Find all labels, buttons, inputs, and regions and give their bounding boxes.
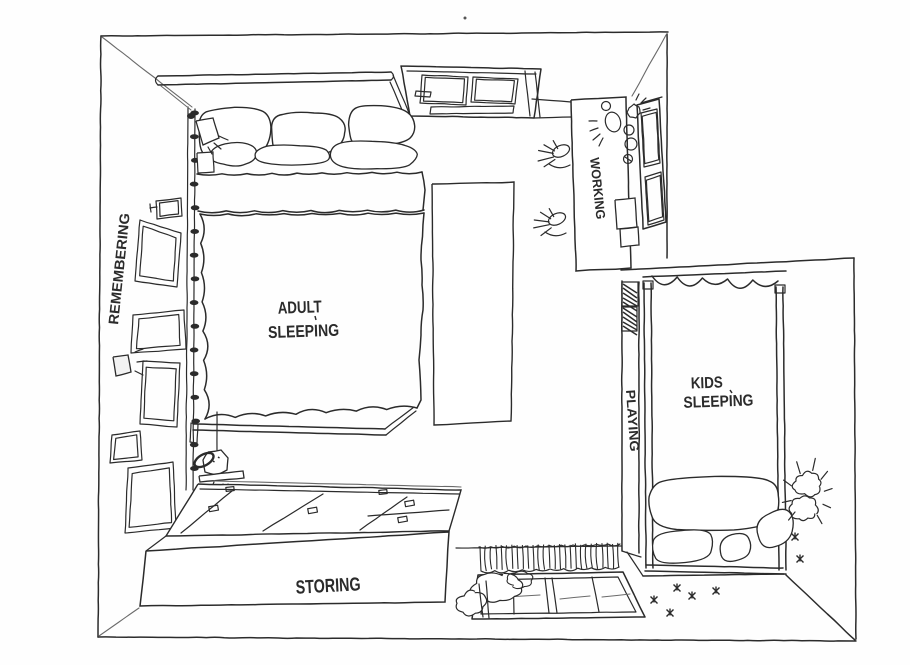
svg-text:SLEEPING: SLEEPING — [683, 392, 754, 411]
svg-text:ADULT: ADULT — [277, 297, 322, 318]
svg-text:KIDS: KIDS — [690, 374, 723, 392]
svg-text:SLEEPING: SLEEPING — [268, 321, 340, 342]
svg-text:STORING: STORING — [295, 574, 361, 598]
